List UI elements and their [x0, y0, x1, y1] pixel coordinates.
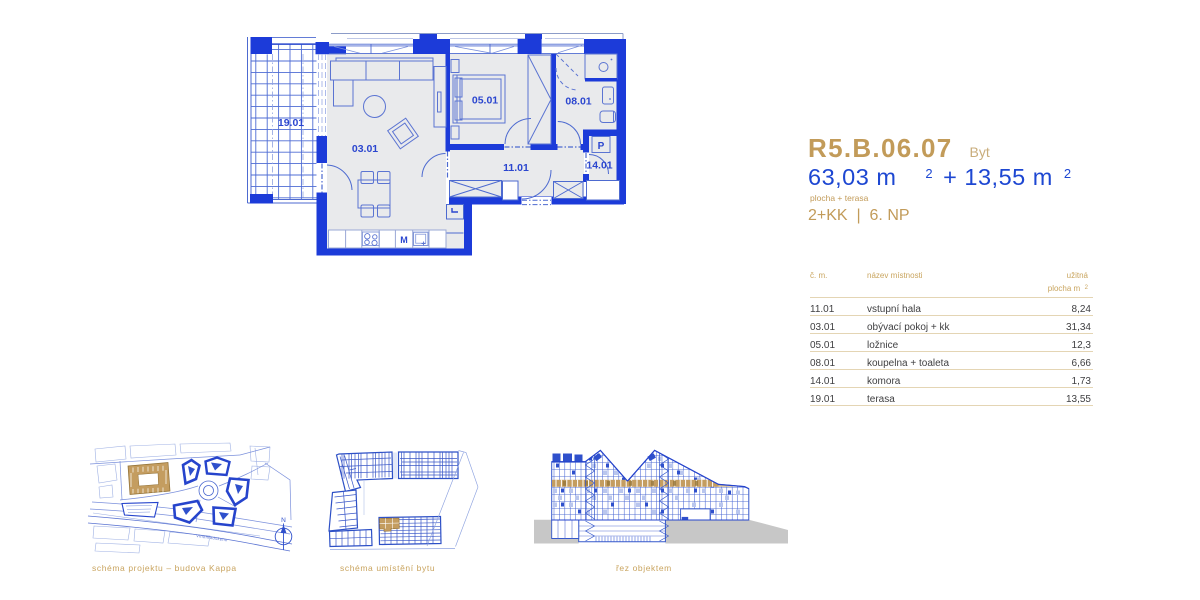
svg-text:P: P — [598, 141, 605, 152]
svg-text:19.01: 19.01 — [278, 117, 304, 129]
svg-text:05.01: 05.01 — [472, 95, 498, 107]
svg-text:11.01: 11.01 — [503, 162, 529, 174]
svg-text:N: N — [281, 517, 286, 524]
svg-text:14.01: 14.01 — [586, 160, 612, 172]
svg-text:M: M — [400, 235, 408, 245]
svg-text:Vinohradskeho: Vinohradskeho — [196, 533, 229, 542]
svg-text:03.01: 03.01 — [352, 143, 378, 155]
svg-text:08.01: 08.01 — [565, 96, 591, 108]
